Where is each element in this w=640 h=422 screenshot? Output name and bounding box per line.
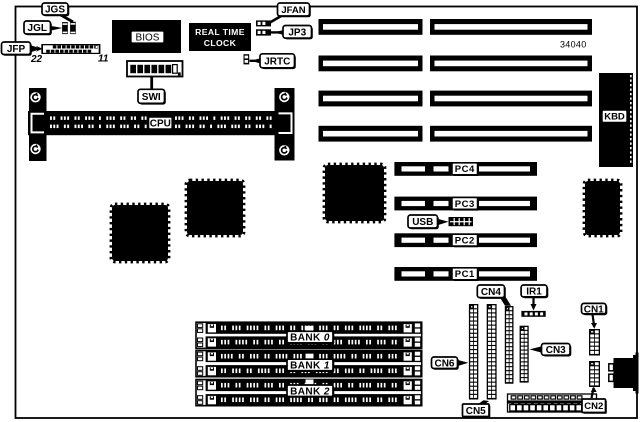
svg-text:USB: USB	[412, 217, 433, 228]
svg-text:REAL TIME: REAL TIME	[195, 27, 245, 37]
svg-text:IR1: IR1	[526, 287, 542, 298]
svg-text:BANK 2: BANK 2	[290, 386, 330, 397]
svg-text:JGS: JGS	[45, 5, 65, 16]
svg-text:JRTC: JRTC	[264, 56, 290, 67]
svg-text:CN6: CN6	[434, 358, 454, 369]
svg-text:JGL: JGL	[28, 23, 47, 34]
svg-text:SWI: SWI	[142, 92, 161, 103]
svg-text:BIOS: BIOS	[136, 33, 160, 44]
svg-text:BANK 1: BANK 1	[290, 361, 330, 372]
svg-text:BANK 0: BANK 0	[290, 333, 330, 344]
svg-text:22: 22	[30, 54, 43, 65]
svg-text:PC1: PC1	[455, 269, 475, 280]
svg-text:CLOCK: CLOCK	[204, 38, 237, 48]
svg-text:CN4: CN4	[481, 287, 501, 298]
svg-text:CN5: CN5	[466, 406, 486, 417]
svg-text:KBD: KBD	[604, 112, 625, 123]
svg-text:CN2: CN2	[584, 401, 603, 412]
svg-text:PC3: PC3	[455, 199, 475, 210]
svg-text:JFP: JFP	[7, 44, 26, 55]
svg-text:34040: 34040	[560, 40, 587, 50]
svg-text:11: 11	[98, 54, 109, 65]
svg-text:JP3: JP3	[288, 27, 306, 38]
svg-text:PC2: PC2	[455, 236, 475, 247]
svg-text:CN1: CN1	[584, 304, 604, 315]
svg-text:PC4: PC4	[455, 164, 475, 175]
svg-text:CN3: CN3	[546, 345, 566, 356]
svg-text:JFAN: JFAN	[281, 5, 305, 16]
svg-text:CPU: CPU	[150, 119, 171, 130]
